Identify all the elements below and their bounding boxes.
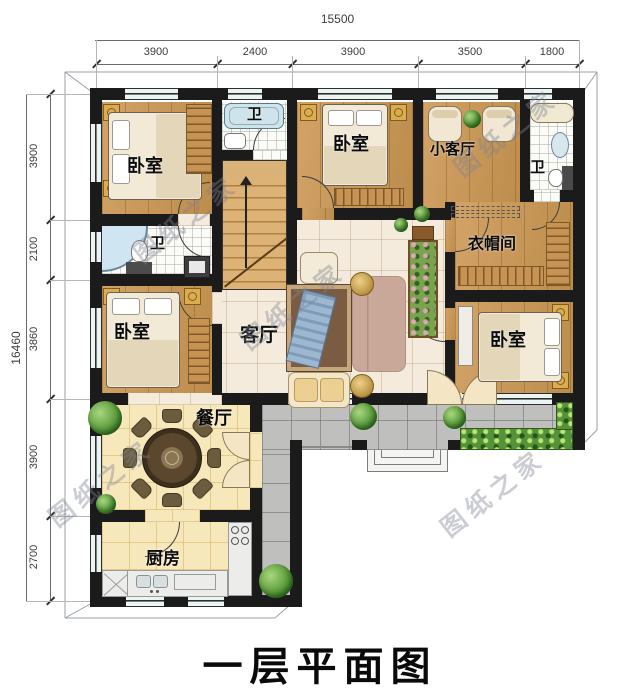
stove-burner: [231, 537, 239, 545]
porch-edge-line: [302, 446, 352, 448]
faucet-dot: [156, 590, 159, 593]
opening-bath3: [532, 190, 560, 202]
dim-seg-top: 3900: [328, 46, 378, 58]
opening-bath1: [253, 150, 287, 160]
pillow: [544, 348, 560, 376]
floor-plan: 卧室 卧室 卧室 卧室 卫 卫 卫 小客厅 衣帽间 客厅 餐厅 厨房 15500…: [0, 0, 640, 692]
wall-segment: [287, 100, 297, 290]
wall-segment: [334, 208, 423, 220]
dimension-line: [95, 40, 580, 41]
wall-segment: [212, 324, 222, 395]
blanket: [108, 340, 178, 386]
stair-landing: [223, 161, 286, 178]
entry-step: [381, 450, 434, 458]
indoor-plant: [394, 218, 408, 232]
wall-segment: [297, 208, 302, 220]
extension-line: [217, 56, 218, 88]
window: [436, 88, 498, 100]
room-label-bedroom-mid-right: 卧室: [490, 326, 526, 352]
sink: [224, 133, 246, 149]
room-label-dining: 餐厅: [196, 404, 232, 430]
extension-line: [292, 56, 293, 88]
wardrobe: [458, 266, 544, 286]
pillow: [112, 120, 130, 150]
window: [90, 124, 102, 182]
dimension-line: [26, 94, 27, 601]
opening-cloak: [445, 218, 455, 252]
bush: [443, 406, 466, 429]
dining-chair: [162, 493, 182, 507]
pillow: [144, 298, 172, 315]
porch-pillar: [290, 440, 302, 450]
window: [90, 232, 102, 262]
extension-line: [579, 40, 580, 88]
dim-seg-left: 3860: [28, 321, 40, 357]
dim-seg-left: 3900: [28, 439, 40, 475]
opening-bed2: [302, 208, 334, 220]
washbasin: [551, 132, 569, 158]
loveseat-cushion: [320, 378, 344, 402]
room-label-cloakroom: 衣帽间: [468, 230, 516, 254]
stair-arrow-head: [240, 176, 252, 185]
planter-strip: [408, 240, 438, 338]
stove-burner: [241, 526, 249, 534]
opening-dining-porch: [250, 432, 262, 488]
page-title: 一层平面图: [0, 634, 640, 692]
side-table: [350, 374, 374, 398]
extension-line: [418, 56, 419, 88]
loveseat-cushion: [294, 378, 318, 402]
hedge: [460, 428, 573, 450]
dining-table-center: [165, 451, 179, 465]
wall-right: [573, 88, 585, 450]
opening-kitchen: [145, 510, 200, 522]
window: [228, 88, 262, 100]
window: [90, 308, 102, 368]
dresser: [334, 188, 404, 206]
room-label-bedroom-mid-left: 卧室: [114, 318, 150, 344]
bush: [259, 564, 293, 598]
pillow: [328, 110, 354, 126]
kitchen-sink: [153, 575, 168, 588]
window: [125, 88, 178, 100]
dim-seg-left: 2700: [28, 539, 40, 575]
pillow: [356, 110, 382, 126]
plant-table: [463, 110, 481, 128]
extension-line: [26, 601, 90, 602]
dimension-line: [95, 64, 580, 65]
nightstand: [184, 288, 201, 305]
stove-burner: [231, 526, 239, 534]
room-label-bath-top-center: 卫: [247, 103, 262, 124]
wall-segment: [250, 405, 262, 432]
bath-cabinet-front: [189, 261, 205, 273]
pillow: [544, 318, 560, 346]
dining-chair: [162, 409, 182, 423]
wardrobe: [186, 104, 212, 174]
hedge: [556, 402, 573, 430]
wall-segment: [530, 190, 534, 202]
bush: [350, 403, 377, 430]
pillow: [112, 298, 140, 315]
stove-burner: [241, 537, 249, 545]
wall-segment: [445, 290, 573, 302]
extension-line: [50, 280, 90, 281]
dresser: [188, 318, 210, 384]
dim-total-top: 15500: [95, 12, 580, 26]
wall-segment: [560, 190, 573, 202]
wall-segment: [222, 150, 253, 160]
toilet-bowl: [548, 169, 563, 187]
extension-line: [50, 399, 90, 400]
nightstand: [300, 104, 317, 121]
room-label-kitchen: 厨房: [146, 544, 180, 569]
cased-opening-dashed: [451, 206, 520, 211]
wall-segment: [90, 510, 145, 522]
window: [318, 88, 392, 100]
extension-line: [525, 56, 526, 88]
stair-arrow-line: [245, 184, 247, 268]
extension-line: [26, 94, 90, 95]
kitchen-sink: [136, 575, 151, 588]
dim-seg-left: 2100: [28, 231, 40, 267]
drying-rack: [174, 574, 216, 590]
dim-seg-top: 2400: [230, 46, 280, 58]
wardrobe: [546, 222, 570, 286]
porch-pillar: [352, 440, 367, 450]
room-label-bedroom-top-left: 卧室: [127, 152, 163, 178]
dim-seg-top: 3900: [131, 46, 181, 58]
room-label-bath-top-right: 卫: [530, 156, 545, 177]
porch-pillar: [448, 440, 460, 450]
extension-line: [96, 40, 97, 88]
opening-bed3: [212, 292, 222, 324]
opening-bed4: [445, 308, 455, 340]
wall-segment: [413, 100, 423, 220]
dim-seg-top: 3500: [445, 46, 495, 58]
armchair: [428, 106, 462, 142]
dim-seg-top: 1800: [527, 46, 577, 58]
dim-total-left: 16460: [9, 326, 23, 370]
nightstand: [390, 104, 407, 121]
dimension-line: [50, 94, 51, 601]
faucet-dot: [150, 590, 153, 593]
window: [90, 535, 102, 572]
room-label-bedroom-top-center: 卧室: [333, 130, 369, 156]
dining-chair: [207, 448, 221, 468]
toilet-tank: [562, 166, 573, 190]
indoor-plant: [414, 206, 430, 222]
cased-opening-dashed: [451, 213, 520, 218]
dim-seg-left: 3900: [28, 138, 40, 174]
corner-cabinet: [102, 570, 128, 597]
side-table: [350, 272, 374, 296]
extension-line: [50, 220, 90, 221]
wardrobe-mirror: [458, 306, 473, 366]
planter-pot: [412, 226, 434, 240]
bush: [88, 401, 122, 435]
